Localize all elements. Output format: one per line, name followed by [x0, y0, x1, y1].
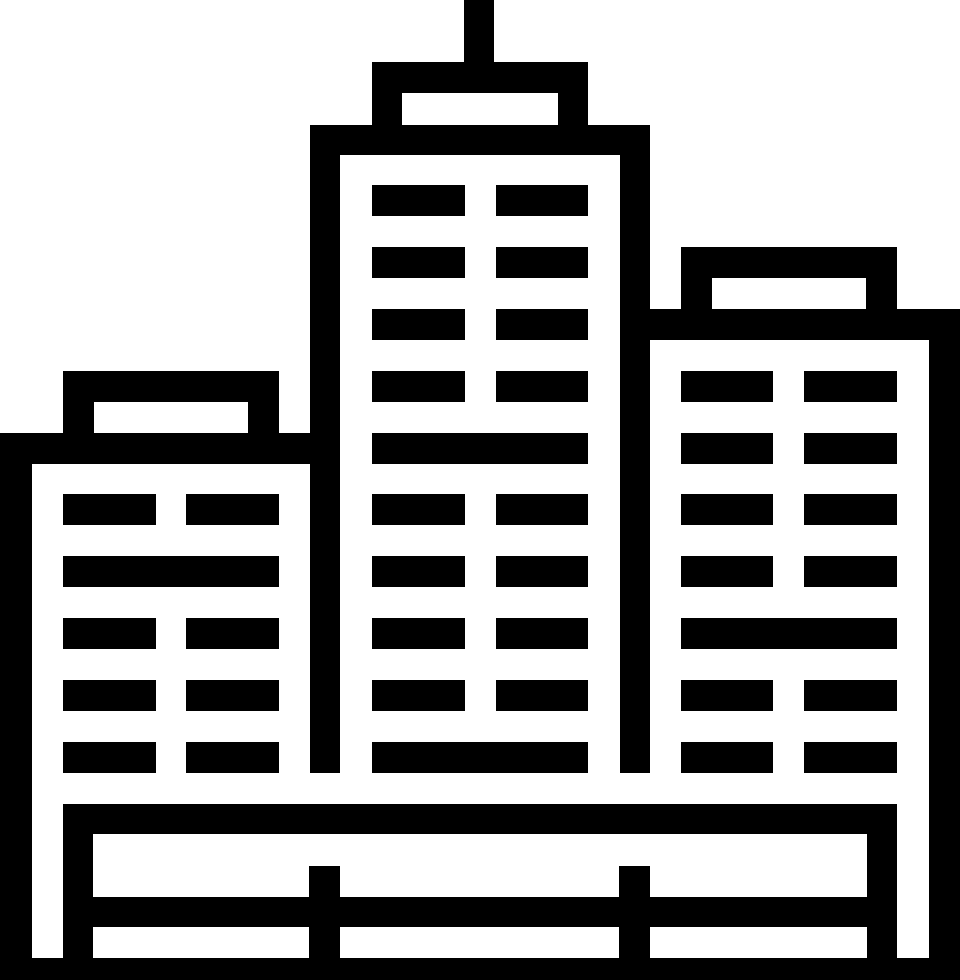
center-building-window [372, 680, 465, 711]
center-building-window [372, 309, 465, 340]
center-building-window [372, 618, 465, 649]
left-building-window [63, 680, 156, 711]
right-building-window [681, 433, 773, 464]
left-building [0, 371, 310, 958]
left-building-window [63, 618, 156, 649]
center-building-window [496, 618, 588, 649]
center-building-antenna [464, 0, 494, 62]
center-building-window-band [372, 433, 588, 464]
right-building-window [681, 742, 773, 773]
base-fence-mid-left-post [309, 866, 340, 980]
left-building-penthouse-roof [63, 371, 279, 402]
center-building-penthouse-roof [372, 62, 588, 93]
left-building-penthouse-right-wall [248, 402, 279, 433]
right-building [620, 247, 960, 958]
right-building-side-wall [929, 340, 960, 958]
center-building-window [496, 494, 588, 525]
center-building-penthouse-right-wall [558, 93, 588, 125]
right-building-window [804, 680, 897, 711]
center-building-window [372, 371, 465, 402]
base-fence-middle-rail [63, 897, 897, 927]
right-building-penthouse-right-wall [866, 278, 897, 309]
center-building-window [372, 247, 465, 278]
center-building-left-wall [310, 155, 340, 773]
center-building-window [496, 680, 588, 711]
right-building-window-band [681, 618, 897, 649]
base-fence-ground-bar [0, 958, 960, 980]
left-building-window [186, 742, 279, 773]
city-buildings-icon-svg [0, 0, 960, 980]
base-fence-mid-right-post [619, 866, 650, 980]
base-fence-right-post [867, 804, 897, 980]
center-building-top-bar [310, 125, 650, 155]
left-building-window-band [63, 556, 279, 587]
right-building-window [804, 556, 897, 587]
center-building-window [496, 247, 588, 278]
right-building-window [681, 371, 773, 402]
right-building-penthouse-left-wall [681, 278, 712, 309]
center-building-window [496, 309, 588, 340]
left-building-penthouse-left-wall [63, 402, 94, 433]
city-buildings-icon [0, 0, 960, 980]
center-building-right-wall [620, 155, 650, 773]
base-fence [0, 804, 960, 980]
right-building-window [804, 494, 897, 525]
center-building-penthouse-left-wall [372, 93, 402, 125]
center-building-window [496, 185, 588, 216]
right-building-window [681, 494, 773, 525]
right-building-penthouse-roof [681, 247, 897, 278]
right-building-window [804, 371, 897, 402]
screenshot-root [0, 0, 960, 980]
right-building-window [681, 680, 773, 711]
right-building-window [681, 556, 773, 587]
center-building-window [372, 185, 465, 216]
center-building-window [372, 556, 465, 587]
left-building-window [186, 680, 279, 711]
left-building-window [63, 742, 156, 773]
center-building-window [496, 371, 588, 402]
right-building-top-bar [620, 309, 960, 340]
left-building-top-bar [0, 433, 310, 464]
center-building [310, 0, 650, 773]
left-building-window [186, 618, 279, 649]
base-fence-top-rail [63, 804, 897, 834]
left-building-window [63, 494, 156, 525]
center-building-window [372, 494, 465, 525]
right-building-window [804, 433, 897, 464]
right-building-window [804, 742, 897, 773]
left-building-side-wall [0, 433, 32, 958]
center-building-window-band [372, 742, 588, 773]
base-fence-left-post [63, 804, 93, 980]
left-building-window [186, 494, 279, 525]
center-building-window [496, 556, 588, 587]
